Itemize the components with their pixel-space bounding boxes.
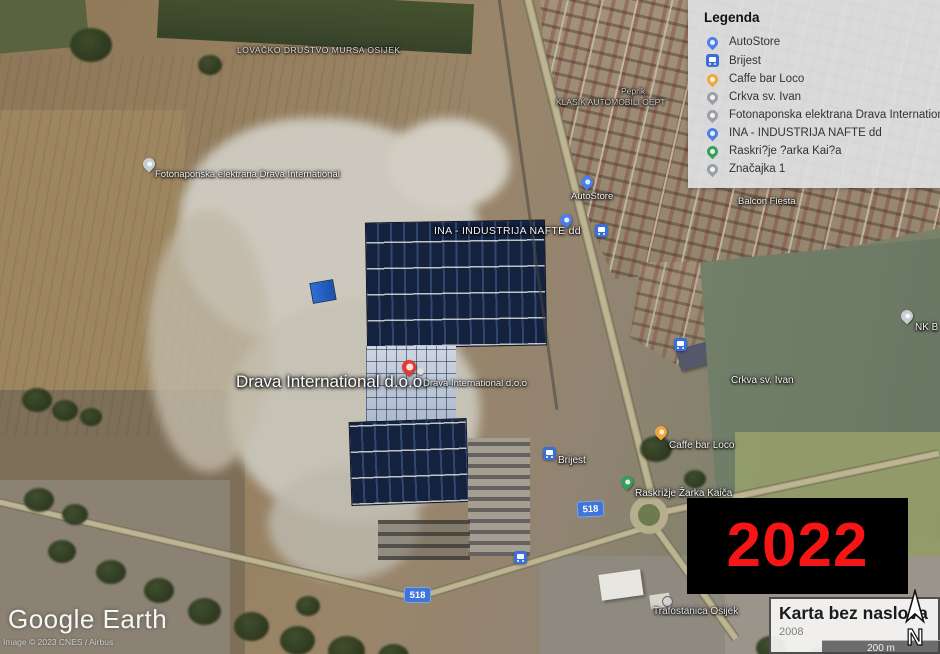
solar-panel-array-upper: [365, 219, 547, 348]
tree: [62, 504, 88, 525]
legend-item-label: AutoStore: [729, 36, 780, 48]
pin-icon: [706, 92, 719, 103]
google-earth-logo: Google Earth: [8, 604, 167, 635]
pin-icon: [706, 146, 719, 157]
compass-north-icon[interactable]: N: [899, 589, 931, 651]
tree: [684, 470, 706, 488]
label-nk: NK B: [915, 322, 938, 333]
bus-stop-icon[interactable]: [674, 338, 687, 351]
legend-item-znacajka[interactable]: Značajka 1: [688, 160, 940, 178]
label-balcon: Balcon Fiesta: [738, 196, 796, 207]
bus-icon: [706, 54, 719, 67]
legend-item-label: Fotonaponska elektrana Drava Internation…: [729, 109, 940, 121]
legend-item-ina[interactable]: INA - INDUSTRIJA NAFTE dd: [688, 124, 940, 142]
legend-item-brijest[interactable]: Brijest: [688, 51, 940, 70]
truck-yard: [468, 438, 530, 556]
legend-item-autostore[interactable]: AutoStore: [688, 33, 940, 51]
tree: [96, 560, 126, 584]
logo-earth: Earth: [103, 604, 168, 634]
label-trafostanica: Trafostanica Osijek: [653, 606, 738, 617]
tree: [24, 488, 54, 512]
legend-item-label: Brijest: [729, 55, 761, 67]
legend-item-raskrizje[interactable]: Raskri?je ?arka Kai?a: [688, 142, 940, 160]
label-ina: INA - INDUSTRIJA NAFTE dd: [434, 225, 581, 237]
pin-icon: [706, 164, 719, 175]
tree: [280, 626, 315, 654]
pin-icon: [706, 110, 719, 121]
legend-item-label: Caffe bar Loco: [729, 73, 804, 85]
tree: [52, 400, 78, 421]
pin-icon: [706, 74, 719, 85]
scale-label: 200 m: [867, 643, 895, 654]
year-text: 2022: [727, 515, 869, 577]
tree: [80, 408, 102, 426]
legend-item-fotonaponska[interactable]: Fotonaponska elektrana Drava Internation…: [688, 106, 940, 124]
legend-title: Legenda: [704, 10, 940, 25]
sheds: [378, 520, 470, 560]
label-crkva: Crkva sv. Ivan: [731, 375, 794, 386]
label-drava-pin: Drava International d.o.o: [423, 378, 527, 389]
solar-panel-array-lower: [349, 418, 470, 506]
label-autostore: AutoStore: [571, 191, 613, 202]
legend-panel: Legenda AutoStore Brijest Caffe bar Loco…: [688, 0, 940, 188]
road-shield-518: 518: [404, 587, 431, 603]
tree: [198, 55, 222, 75]
bus-stop-icon[interactable]: [543, 447, 556, 460]
road-shield-518: 518: [577, 500, 605, 517]
tree: [296, 596, 320, 616]
roundabout: [630, 496, 668, 534]
legend-item-label: Crkva sv. Ivan: [729, 91, 801, 103]
tree: [70, 28, 112, 62]
legend-item-label: INA - INDUSTRIJA NAFTE dd: [729, 127, 882, 139]
tree: [234, 612, 269, 641]
legend-item-caffe-bar-loco[interactable]: Caffe bar Loco: [688, 70, 940, 88]
compass-label: N: [907, 624, 924, 650]
year-overlay: 2022: [687, 498, 908, 594]
legend-item-label: Raskri?je ?arka Kai?a: [729, 145, 842, 157]
tree: [144, 578, 174, 603]
label-drava-large: Drava International d.o.o.: [236, 372, 427, 392]
label-fotonaponska: Fotonaponska elektrana Drava Internation…: [155, 169, 340, 180]
google-earth-viewport[interactable]: LOVAČKO DRUŠTVO MURSA OSIJEK Fotonaponsk…: [0, 0, 940, 654]
legend-item-label: Značajka 1: [729, 163, 785, 175]
bus-stop-icon[interactable]: [514, 551, 527, 564]
label-brijest: Brijest: [558, 455, 586, 466]
imagery-copyright: Image © 2023 CNES / Airbus: [3, 637, 113, 647]
terrain-gravel-4: [148, 210, 270, 472]
label-lovacko: LOVAČKO DRUŠTVO MURSA OSIJEK: [237, 45, 401, 55]
label-klasik: KLASIK AUTOMOBILI OEPT: [556, 97, 665, 107]
tree: [48, 540, 76, 563]
legend-item-crkva-sv-ivan[interactable]: Crkva sv. Ivan: [688, 88, 940, 106]
bus-stop-icon[interactable]: [595, 224, 608, 237]
label-caffe: Caffe bar Loco: [669, 440, 734, 451]
pin-icon: [706, 37, 719, 48]
blue-building: [309, 279, 336, 304]
logo-google: Google: [8, 604, 95, 634]
pin-icon: [706, 128, 719, 139]
tree: [640, 436, 672, 462]
tree: [22, 388, 52, 412]
tree: [188, 598, 221, 625]
terrain-gravel-5: [388, 118, 510, 210]
label-peprik: Peprik: [621, 86, 645, 96]
